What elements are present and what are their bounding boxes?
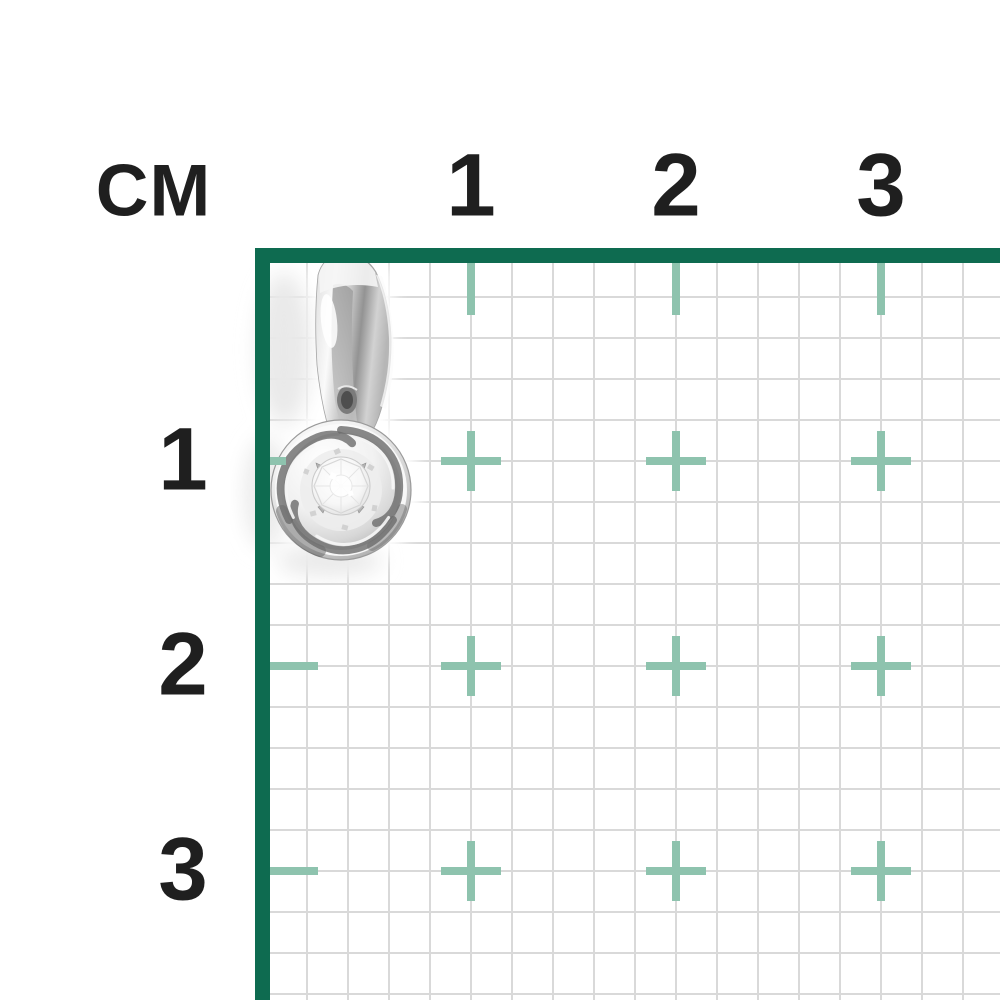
ruler-left-label-1: 1: [158, 415, 208, 504]
ruler-line-vertical: [255, 248, 270, 1000]
ruler-line-horizontal: [255, 248, 1000, 263]
cm-cross-marker-1x2: [441, 636, 501, 696]
ruler-top-label-1: 1: [446, 141, 496, 230]
diamond-stone: [312, 457, 370, 515]
cm-cross-marker-3x3: [851, 841, 911, 901]
ruler-left-label-2: 2: [158, 620, 208, 709]
cm-cross-marker-2x3: [646, 841, 706, 901]
cm-cross-marker-2x1: [646, 431, 706, 491]
cm-cross-marker-3x2: [851, 636, 911, 696]
cm-tick-top-3: [877, 263, 885, 315]
cm-cross-marker-1x3: [441, 841, 501, 901]
cm-cross-marker-3x1: [851, 431, 911, 491]
cm-tick-top-2: [672, 263, 680, 315]
ruler-top-label-3: 3: [856, 141, 906, 230]
cm-tick-left-1-visible-part: [270, 457, 286, 465]
cm-tick-left-2: [270, 662, 318, 670]
cm-cross-marker-2x2: [646, 636, 706, 696]
ruler-left-label-3: 3: [158, 825, 208, 914]
cm-cross-marker-1x1: [441, 431, 501, 491]
cm-tick-top-1: [467, 263, 475, 315]
unit-label: СМ: [96, 155, 213, 228]
size-chart: СМ 1 2 3 1 2 3: [0, 0, 1000, 1000]
ruler-top-label-2: 2: [651, 141, 701, 230]
cm-tick-left-3: [270, 867, 318, 875]
